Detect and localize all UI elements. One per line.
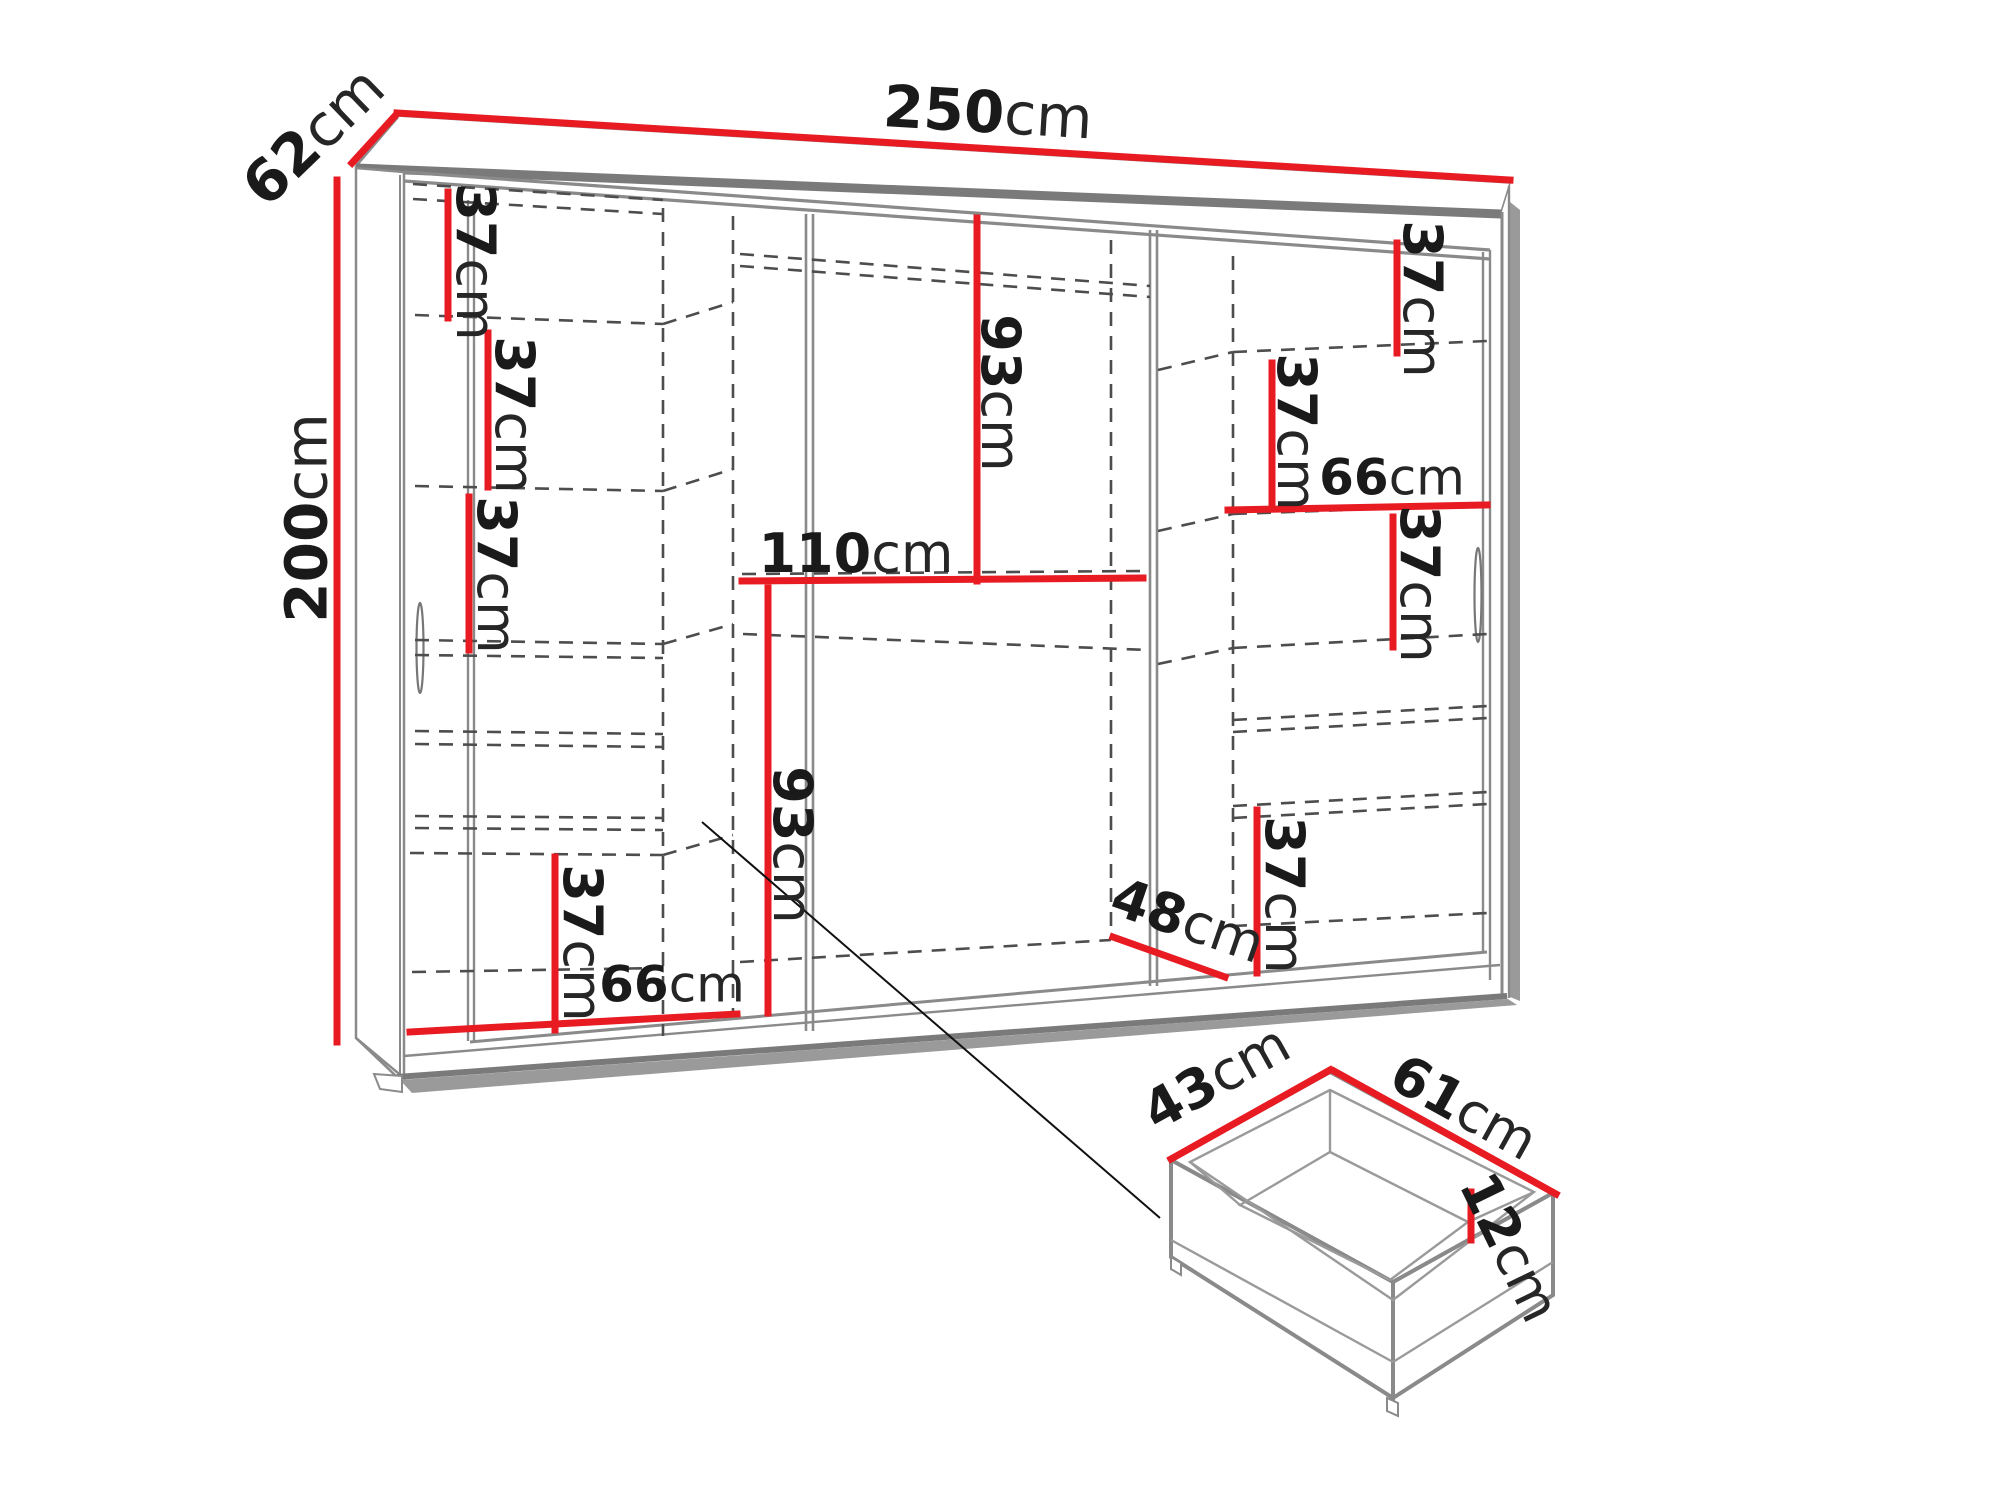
- dim-label-left-shelf-1: 37cm: [444, 183, 507, 340]
- dim-label-right-shelf-4: 37cm: [1253, 816, 1316, 973]
- dim-label-left-shelf-3: 37cm: [465, 496, 528, 653]
- dim-value: 37: [1265, 353, 1328, 428]
- dim-unit: cm: [1388, 580, 1451, 662]
- dim-value: 93: [761, 766, 824, 841]
- shelf-line: [415, 816, 663, 818]
- right-door-handle: [1475, 548, 1482, 642]
- wardrobe-dimension-diagram: 250cm 62cm 200cm 37cm 37cm 37cm 37cm 66c…: [0, 0, 2000, 1500]
- shelf-depth-line: [1158, 352, 1233, 370]
- dim-label-right-shelf-3: 37cm: [1388, 505, 1451, 662]
- middle-shelf-lower-edge: [743, 634, 1148, 650]
- dim-value: 37: [444, 183, 507, 258]
- dim-label-overall-width: 250cm: [881, 72, 1094, 152]
- shelf-line: [1233, 792, 1487, 806]
- dim-unit: cm: [669, 956, 745, 1014]
- left-door-handle: [417, 603, 424, 693]
- dim-unit: cm: [871, 522, 953, 585]
- dim-value: 37: [551, 864, 614, 939]
- shelf-depth-line: [663, 835, 733, 855]
- shelf-depth-line: [1158, 648, 1233, 664]
- dim-label-right-shelf-1: 37cm: [1391, 220, 1454, 377]
- drawer-foot: [1387, 1398, 1398, 1416]
- dim-unit: cm: [1389, 449, 1465, 507]
- right-shadow: [1510, 202, 1520, 1001]
- shelf-depth-line: [663, 302, 733, 324]
- dim-unit: cm: [1002, 79, 1094, 152]
- dim-value: 93: [969, 314, 1032, 389]
- dim-value: 250: [881, 72, 1006, 147]
- dim-value: 37: [1391, 220, 1454, 295]
- dim-label-middle-upper-height: 93cm: [969, 314, 1032, 471]
- dim-value: 66: [599, 956, 669, 1014]
- shelf-line: [1233, 706, 1487, 720]
- dim-unit: cm: [1391, 295, 1454, 377]
- shelf-line: [1233, 718, 1487, 732]
- dim-value: 37: [1388, 505, 1451, 580]
- shelf-line: [415, 640, 663, 644]
- left-wall: [356, 168, 404, 1078]
- dim-value: 66: [1319, 449, 1389, 507]
- dim-label-right-width: 66cm: [1319, 449, 1465, 507]
- shelf-line: [415, 731, 663, 734]
- wardrobe-body: [356, 116, 1520, 1093]
- dim-label-left-shelf-2: 37cm: [483, 336, 546, 493]
- shelf-line: [410, 853, 663, 855]
- dim-label-floor-depth: 48cm: [1103, 865, 1272, 976]
- dim-unit: cm: [465, 571, 528, 653]
- shelf-depth-line: [663, 624, 733, 644]
- dim-value: 37: [483, 336, 546, 411]
- dim-unit: cm: [272, 413, 340, 501]
- shelf-line: [415, 655, 663, 658]
- shelf-line: [415, 828, 663, 830]
- shelf-depth-line: [663, 469, 733, 491]
- dim-value: 110: [758, 522, 871, 585]
- dim-unit: cm: [969, 389, 1032, 471]
- dim-unit: cm: [761, 841, 824, 923]
- middle-floor-back-edge: [740, 940, 1111, 962]
- dim-unit: cm: [483, 411, 546, 493]
- dim-value: 37: [465, 496, 528, 571]
- dim-label-left-width: 66cm: [599, 956, 745, 1014]
- left-foot: [374, 1074, 402, 1092]
- dim-value: 37: [1253, 816, 1316, 891]
- dim-unit: cm: [444, 258, 507, 340]
- dim-label-middle-lower-height: 93cm: [761, 766, 824, 923]
- dim-label-overall-height: 200cm: [272, 413, 340, 622]
- dim-value: 200: [272, 502, 340, 623]
- dim-label-middle-shelf-width: 110cm: [758, 522, 953, 585]
- shelf-line: [415, 744, 663, 747]
- shelf-depth-line: [1158, 514, 1233, 531]
